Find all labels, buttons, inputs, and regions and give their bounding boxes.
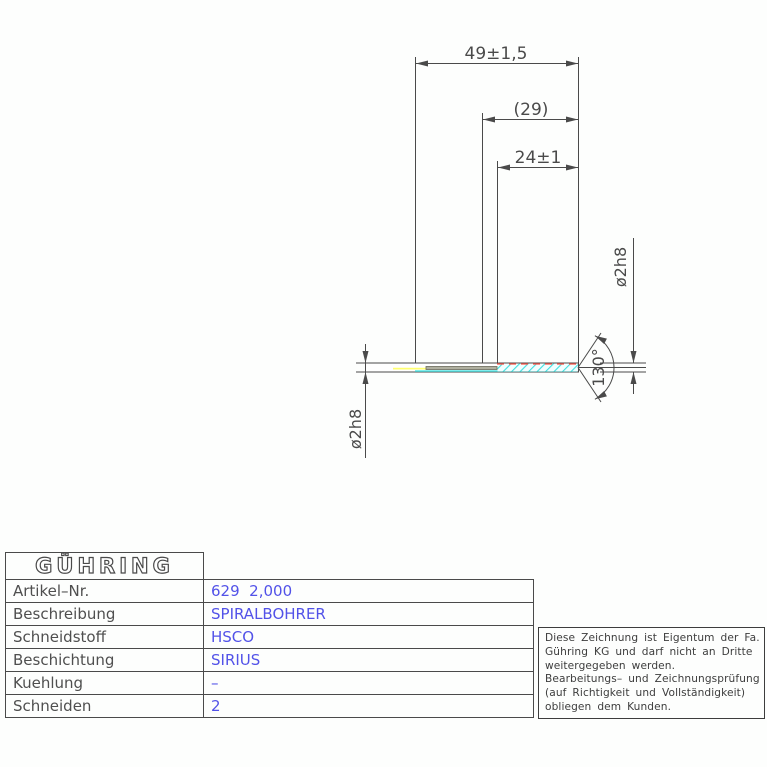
drawing-sheet: 49±1,5 (29) 24±1 130° bbox=[0, 0, 767, 767]
notice-line: (auf Richtigkeit und Vollständigkeit) bbox=[545, 687, 764, 701]
article-number-value: 629 2,000 bbox=[204, 580, 534, 603]
specification-table: GÜHRING Artikel–Nr. 629 2,000 Beschreibu… bbox=[5, 552, 534, 718]
table-row: Kuehlung – bbox=[6, 672, 534, 695]
article-number-label: Artikel–Nr. bbox=[6, 580, 204, 603]
legal-notice-box: Diese Zeichnung ist Eigentum der Fa. Güh… bbox=[538, 627, 765, 719]
coating-value: SIRIUS bbox=[204, 649, 534, 672]
dim-ref-length-label: (29) bbox=[514, 100, 549, 120]
notice-line: obliegen dem Kunden. bbox=[545, 701, 764, 715]
flutes-value: 2 bbox=[204, 695, 534, 718]
dim-diameter-tip-label: ø2h8 bbox=[611, 247, 630, 287]
cutting-material-value: HSCO bbox=[204, 626, 534, 649]
description-value: SPIRALBOHRER bbox=[204, 603, 534, 626]
cutting-material-label: Schneidstoff bbox=[6, 626, 204, 649]
guehring-logo: GÜHRING bbox=[35, 554, 174, 578]
notice-line: Diese Zeichnung ist Eigentum der Fa. bbox=[545, 632, 764, 646]
notice-line: weitergegeben werden. bbox=[545, 660, 764, 674]
extension-lines bbox=[416, 57, 579, 372]
drill-body bbox=[366, 363, 579, 372]
dim-total-length-label: 49±1,5 bbox=[465, 44, 528, 64]
table-row: Beschichtung SIRIUS bbox=[6, 649, 534, 672]
logo-cell: GÜHRING bbox=[6, 553, 204, 580]
notice-line: Gühring KG und darf nicht an Dritte bbox=[545, 646, 764, 660]
table-row: Schneidstoff HSCO bbox=[6, 626, 534, 649]
table-row: Beschreibung SPIRALBOHRER bbox=[6, 603, 534, 626]
flutes-label: Schneiden bbox=[6, 695, 204, 718]
logo-row-empty-cell bbox=[204, 553, 534, 580]
table-row: Schneiden 2 bbox=[6, 695, 534, 718]
drill-flute-hatch bbox=[498, 364, 579, 372]
drill-core-band bbox=[426, 367, 497, 370]
dim-flute-length-label: 24±1 bbox=[515, 148, 562, 168]
cooling-label: Kuehlung bbox=[6, 672, 204, 695]
notice-line: Bearbeitungs– und Zeichnungsprüfung bbox=[545, 673, 764, 687]
table-row: GÜHRING bbox=[6, 553, 534, 580]
table-row: Artikel–Nr. 629 2,000 bbox=[6, 580, 534, 603]
cooling-value: – bbox=[204, 672, 534, 695]
description-label: Beschreibung bbox=[6, 603, 204, 626]
coating-label: Beschichtung bbox=[6, 649, 204, 672]
dim-diameter-shank-label: ø2h8 bbox=[346, 409, 365, 449]
